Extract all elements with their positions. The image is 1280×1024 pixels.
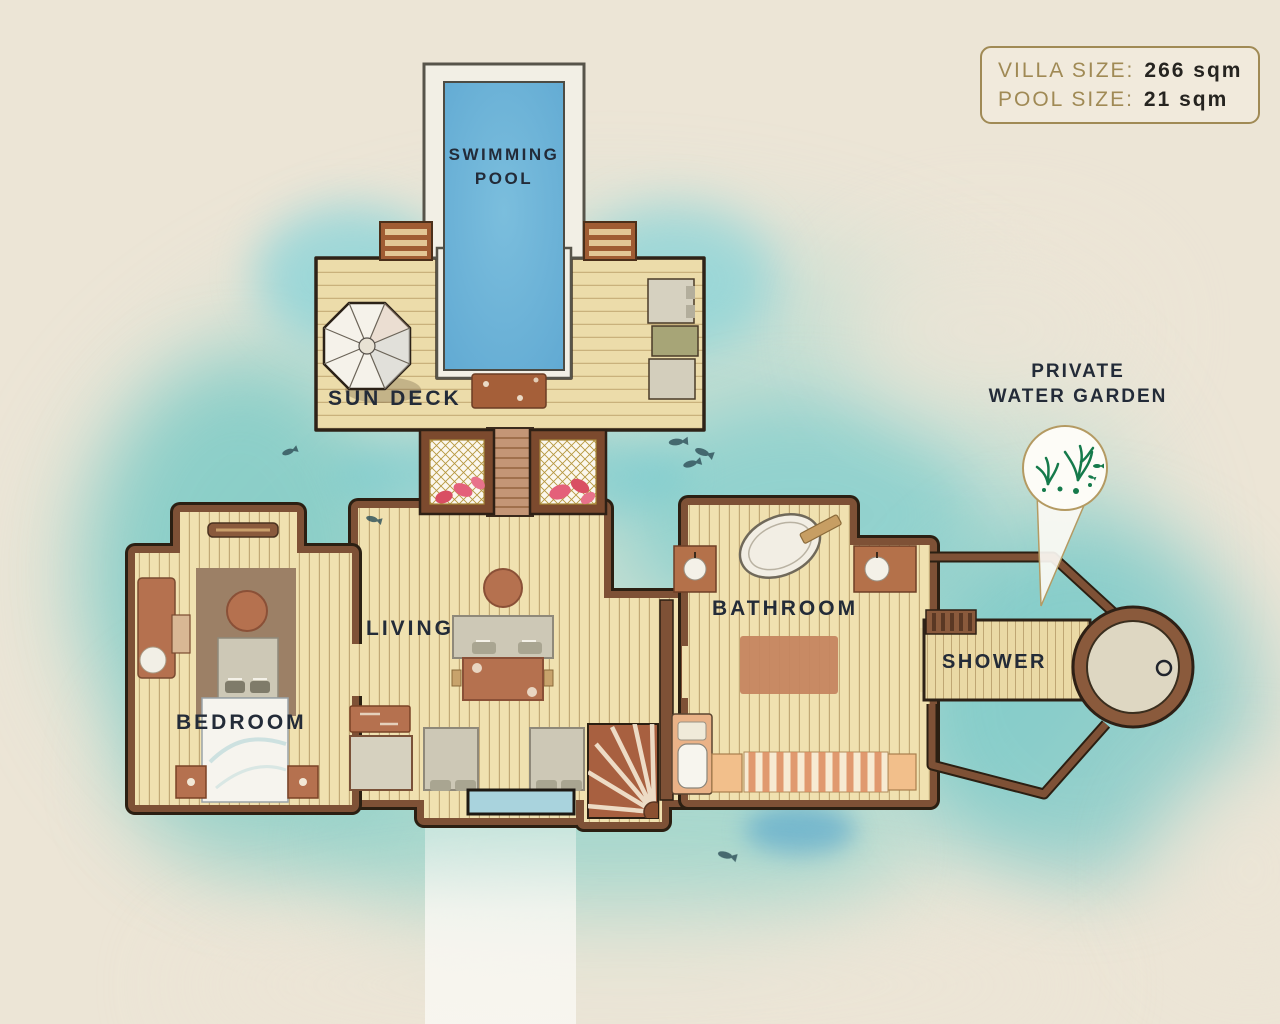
map-pin-icon [1023, 426, 1107, 606]
bath-counter [712, 754, 742, 792]
bathroom-rug [740, 636, 838, 694]
swimming-pool-label-line2: POOL [475, 169, 533, 188]
floor-plan-canvas: SWIMMING POOL SUN DECK LIVING BEDROOM BA… [0, 0, 1280, 1024]
pillow [225, 681, 245, 693]
glass-floor-panel [468, 790, 574, 814]
floor-plan-svg [0, 0, 1280, 1024]
villa-size-value: 266 sqm [1144, 59, 1242, 82]
sofa-cushion [472, 642, 496, 654]
pool-steps-right [584, 222, 636, 260]
water-garden-label: PRIVATE WATER GARDEN [966, 359, 1190, 409]
sofa-cushion [518, 642, 542, 654]
pool-size-row: POOL SIZE:21 sqm [998, 85, 1242, 114]
fish-icon [717, 849, 738, 862]
fish-icon [281, 445, 298, 457]
villa-size-row: VILLA SIZE:266 sqm [998, 56, 1242, 85]
side-table [350, 736, 412, 790]
pool-steps-left [380, 222, 432, 260]
pool-size-label: POOL SIZE: [998, 88, 1134, 111]
swimming-pool-label-line1: SWIMMING [449, 145, 560, 164]
shower-label: SHOWER [942, 651, 1047, 674]
doorway-living-bathroom [682, 646, 702, 698]
pillow [250, 681, 270, 693]
living-label: LIVING [366, 617, 454, 641]
bathroom-label: BATHROOM [712, 597, 858, 621]
desk-bowl [140, 647, 166, 673]
desk-stool [172, 615, 190, 653]
console-bench [350, 706, 410, 732]
lounger [652, 326, 698, 356]
spiral-staircase [586, 720, 664, 822]
sun-loungers [648, 279, 698, 399]
bath-mat [744, 752, 888, 792]
doorway-bedroom-living [342, 644, 370, 696]
water-garden-label-line2: WATER GARDEN [989, 386, 1168, 407]
fish-icon [682, 457, 702, 470]
pool-size-value: 21 sqm [1144, 88, 1228, 111]
ottoman [227, 591, 267, 631]
pool-doormat [472, 374, 546, 408]
swimming-pool-shape [424, 64, 584, 378]
fish-icon [668, 437, 688, 447]
fish-icon [694, 446, 715, 460]
water-garden-label-line1: PRIVATE [1031, 361, 1125, 382]
sun-deck-label: SUN DECK [328, 387, 462, 411]
walkway-step [926, 610, 976, 634]
hall-wall [660, 600, 673, 800]
lounger [649, 359, 695, 399]
bedroom-label: BEDROOM [176, 711, 307, 735]
net-daybed-right [530, 430, 606, 514]
round-table [484, 569, 522, 607]
net-daybed-left [420, 430, 494, 514]
bath-counter [888, 754, 916, 790]
villa-size-label: VILLA SIZE: [998, 59, 1134, 82]
shower-deck [1073, 607, 1193, 727]
swimming-pool-label: SWIMMING POOL [438, 143, 570, 191]
size-info-box: VILLA SIZE:266 sqm POOL SIZE:21 sqm [980, 46, 1260, 124]
